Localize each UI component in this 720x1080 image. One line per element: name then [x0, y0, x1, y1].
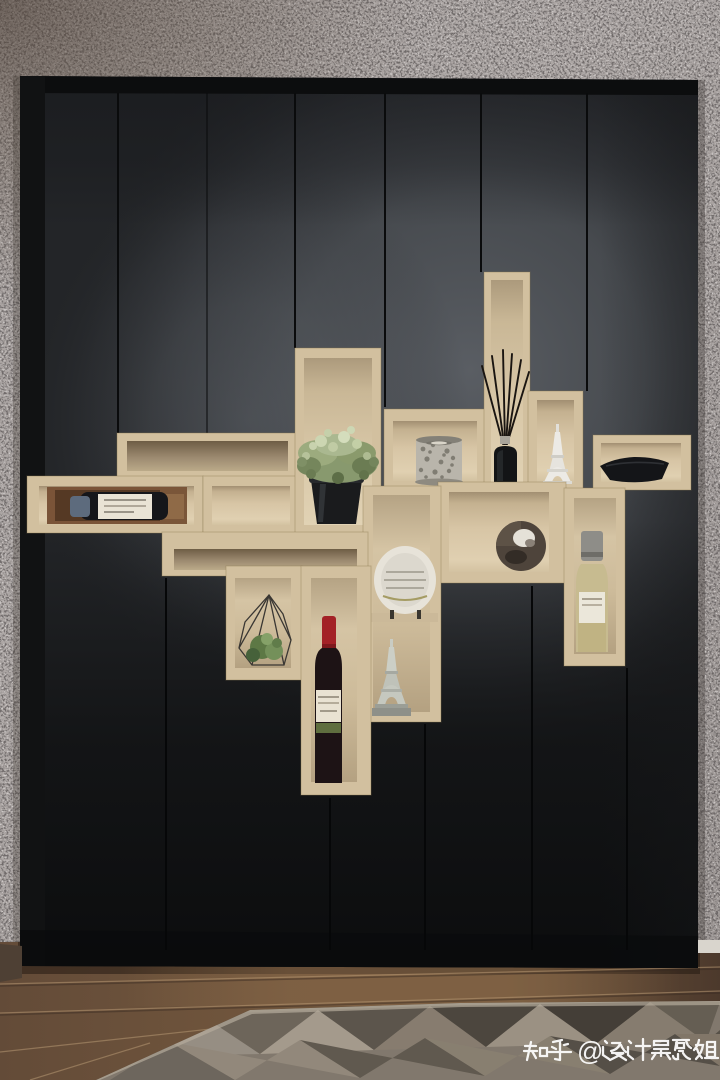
svg-text:@: @: [577, 1036, 603, 1066]
